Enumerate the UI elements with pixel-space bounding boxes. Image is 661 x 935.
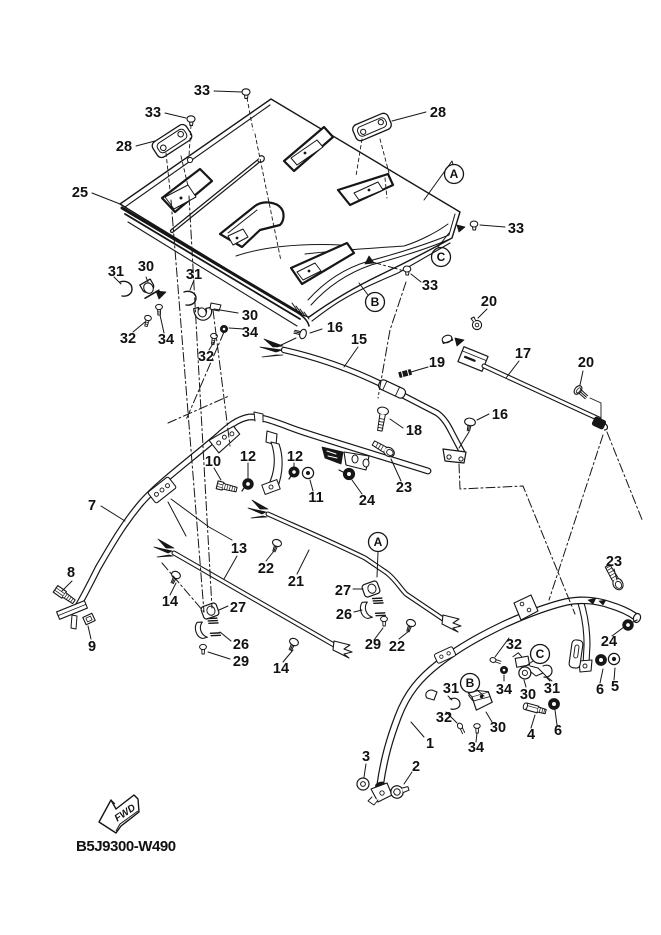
svg-text:26: 26 bbox=[233, 637, 249, 653]
svg-text:B: B bbox=[371, 295, 380, 309]
svg-text:34: 34 bbox=[468, 740, 484, 756]
svg-text:4: 4 bbox=[527, 727, 535, 743]
svg-text:33: 33 bbox=[422, 278, 438, 294]
svg-text:25: 25 bbox=[72, 185, 88, 201]
svg-text:19: 19 bbox=[429, 355, 445, 371]
svg-text:23: 23 bbox=[606, 554, 622, 570]
svg-text:C: C bbox=[536, 647, 545, 661]
svg-text:8: 8 bbox=[67, 565, 75, 581]
svg-text:31: 31 bbox=[108, 264, 124, 280]
svg-text:28: 28 bbox=[430, 105, 446, 121]
svg-text:29: 29 bbox=[233, 654, 249, 670]
svg-text:34: 34 bbox=[496, 682, 512, 698]
svg-text:1: 1 bbox=[426, 736, 434, 752]
svg-text:10: 10 bbox=[205, 454, 221, 470]
svg-text:33: 33 bbox=[508, 221, 524, 237]
svg-text:22: 22 bbox=[389, 639, 405, 655]
svg-text:32: 32 bbox=[120, 331, 136, 347]
svg-text:33: 33 bbox=[194, 83, 210, 99]
svg-text:A: A bbox=[374, 535, 383, 549]
svg-text:B5J9300-W490: B5J9300-W490 bbox=[76, 838, 176, 855]
svg-text:7: 7 bbox=[88, 498, 96, 514]
svg-text:16: 16 bbox=[492, 407, 508, 423]
svg-text:27: 27 bbox=[230, 600, 246, 616]
svg-text:31: 31 bbox=[443, 681, 459, 697]
svg-text:34: 34 bbox=[158, 332, 174, 348]
svg-text:5: 5 bbox=[611, 679, 619, 695]
svg-text:32: 32 bbox=[198, 349, 214, 365]
svg-text:27: 27 bbox=[335, 583, 351, 599]
svg-text:24: 24 bbox=[601, 634, 617, 650]
svg-text:32: 32 bbox=[436, 710, 452, 726]
svg-text:16: 16 bbox=[327, 320, 343, 336]
svg-text:30: 30 bbox=[138, 259, 154, 275]
svg-text:11: 11 bbox=[308, 490, 323, 506]
svg-text:34: 34 bbox=[242, 325, 258, 341]
svg-text:B: B bbox=[466, 676, 475, 690]
svg-text:31: 31 bbox=[186, 267, 202, 283]
svg-text:30: 30 bbox=[242, 308, 258, 324]
svg-text:14: 14 bbox=[273, 661, 289, 677]
svg-text:15: 15 bbox=[351, 332, 367, 348]
svg-text:12: 12 bbox=[287, 449, 303, 465]
svg-text:23: 23 bbox=[396, 480, 412, 496]
svg-text:24: 24 bbox=[359, 493, 375, 509]
svg-text:17: 17 bbox=[515, 346, 531, 362]
svg-text:9: 9 bbox=[88, 639, 96, 655]
svg-text:21: 21 bbox=[288, 574, 304, 590]
svg-text:20: 20 bbox=[481, 294, 497, 310]
svg-text:3: 3 bbox=[362, 749, 370, 765]
svg-text:31: 31 bbox=[544, 681, 560, 697]
svg-text:30: 30 bbox=[490, 720, 506, 736]
svg-text:32: 32 bbox=[506, 637, 522, 653]
svg-text:C: C bbox=[437, 250, 446, 264]
svg-text:22: 22 bbox=[258, 561, 274, 577]
svg-text:6: 6 bbox=[554, 723, 562, 739]
svg-text:28: 28 bbox=[116, 139, 132, 155]
svg-text:6: 6 bbox=[596, 682, 604, 698]
svg-text:12: 12 bbox=[240, 449, 256, 465]
svg-text:13: 13 bbox=[231, 541, 247, 557]
svg-text:14: 14 bbox=[162, 594, 178, 610]
svg-text:26: 26 bbox=[336, 607, 352, 623]
svg-text:33: 33 bbox=[145, 105, 161, 121]
svg-text:2: 2 bbox=[412, 759, 420, 775]
svg-text:18: 18 bbox=[406, 423, 422, 439]
svg-text:20: 20 bbox=[578, 355, 594, 371]
svg-text:30: 30 bbox=[520, 687, 536, 703]
svg-text:29: 29 bbox=[365, 637, 381, 653]
svg-text:A: A bbox=[450, 167, 459, 181]
